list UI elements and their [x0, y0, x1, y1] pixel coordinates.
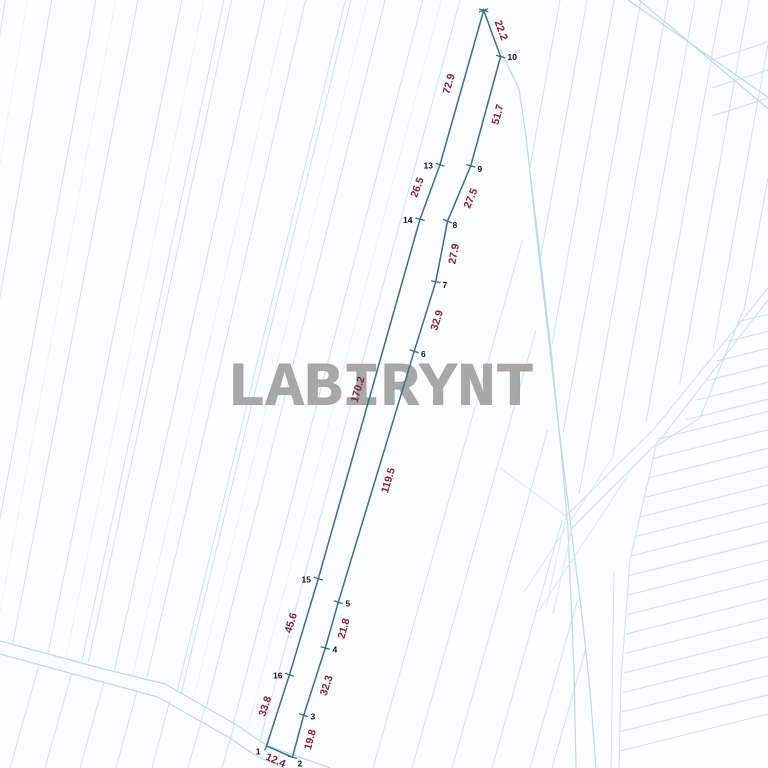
svg-text:5: 5	[346, 599, 351, 609]
svg-text:15: 15	[302, 575, 312, 585]
svg-text:14: 14	[403, 215, 413, 225]
svg-text:16: 16	[273, 671, 283, 681]
svg-text:2: 2	[298, 759, 303, 768]
svg-text:4: 4	[333, 645, 338, 655]
svg-text:3: 3	[311, 712, 316, 722]
svg-text:10: 10	[508, 52, 518, 62]
svg-text:LABIRYNT: LABIRYNT	[227, 355, 534, 424]
svg-text:13: 13	[424, 161, 434, 171]
svg-text:9: 9	[478, 164, 483, 174]
svg-text:1: 1	[256, 747, 261, 757]
svg-text:6: 6	[421, 349, 426, 359]
svg-text:8: 8	[453, 220, 458, 230]
svg-text:7: 7	[443, 280, 448, 290]
